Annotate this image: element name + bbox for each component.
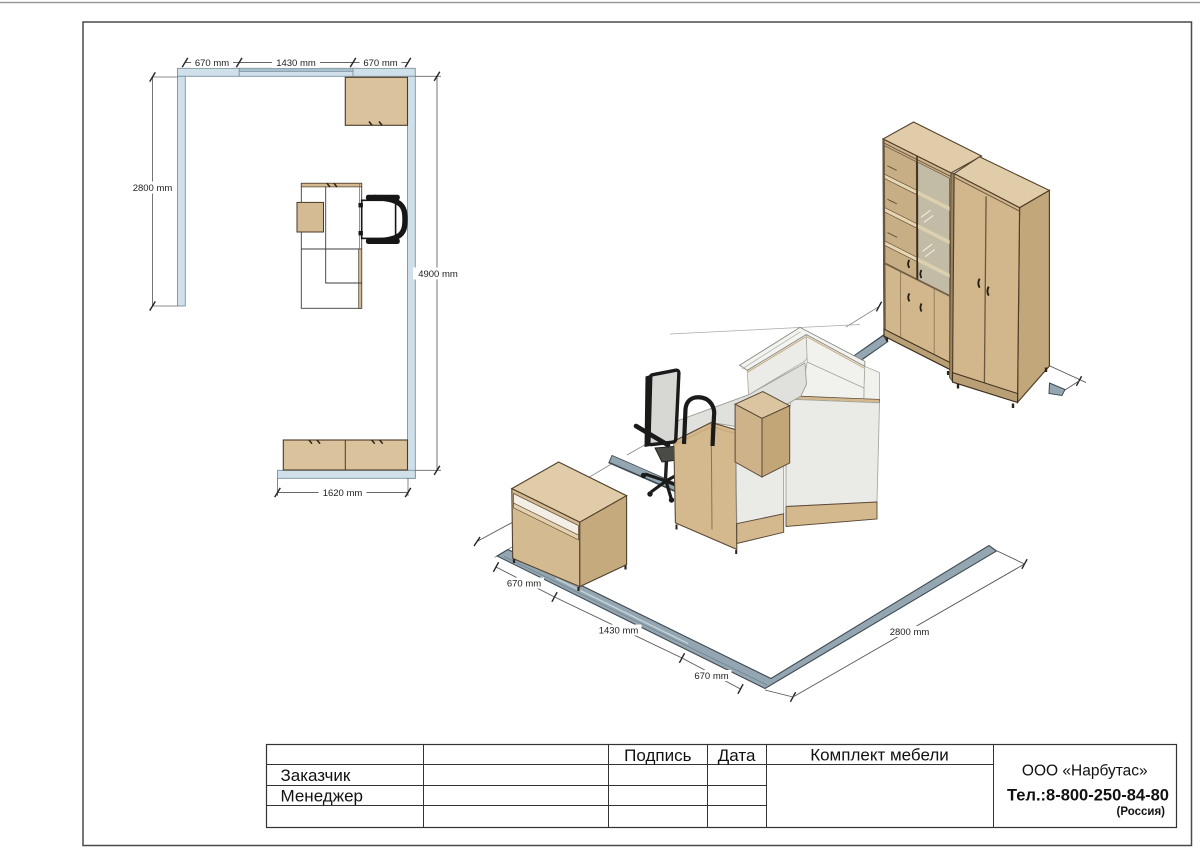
- svg-text:670 mm: 670 mm: [363, 58, 397, 69]
- svg-text:1430 mm: 1430 mm: [599, 626, 639, 637]
- svg-text:670 mm: 670 mm: [507, 579, 541, 590]
- svg-text:4900 mm: 4900 mm: [418, 269, 458, 280]
- svg-text:670 mm: 670 mm: [694, 671, 728, 682]
- svg-text:Дата: Дата: [718, 746, 756, 765]
- svg-text:2800 mm: 2800 mm: [890, 627, 930, 638]
- svg-text:1430 mm: 1430 mm: [276, 58, 316, 69]
- svg-text:2800 mm: 2800 mm: [133, 183, 173, 194]
- svg-text:ООО «Нарбутас»: ООО «Нарбутас»: [1022, 763, 1148, 780]
- svg-text:Тел.:8-800-250-84-80: Тел.:8-800-250-84-80: [1007, 787, 1169, 805]
- svg-text:1620 mm: 1620 mm: [323, 488, 363, 499]
- svg-text:670 mm: 670 mm: [195, 58, 229, 69]
- svg-text:Заказчик: Заказчик: [281, 766, 351, 785]
- svg-text:Комплект мебели: Комплект мебели: [810, 745, 949, 764]
- svg-text:Подпись: Подпись: [624, 746, 691, 765]
- svg-text:(Россия): (Россия): [1117, 806, 1166, 818]
- svg-text:Менеджер: Менеджер: [281, 787, 363, 806]
